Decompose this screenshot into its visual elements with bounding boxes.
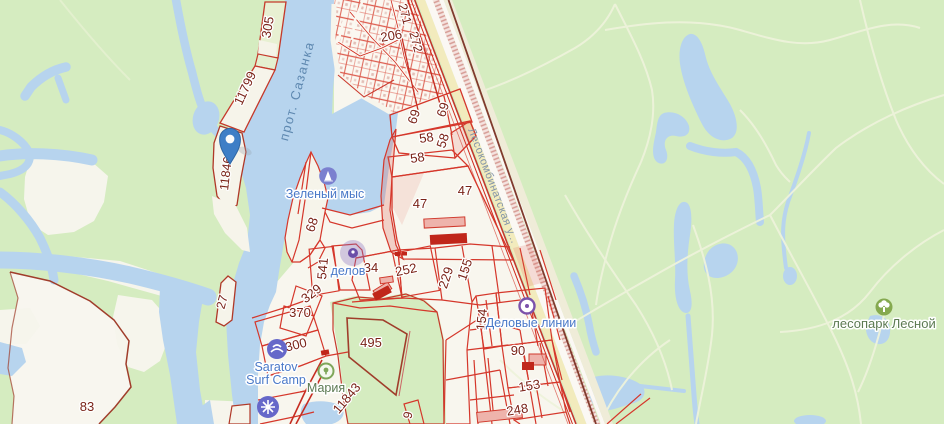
svg-text:90: 90 (511, 343, 525, 358)
svg-text:Saratov: Saratov (254, 360, 298, 374)
svg-text:541: 541 (314, 257, 331, 280)
svg-text:370: 370 (289, 305, 311, 320)
svg-text:Зеленый мыс: Зеленый мыс (286, 187, 365, 201)
svg-text:495: 495 (360, 335, 382, 350)
svg-text:делов: делов (331, 264, 366, 278)
svg-text:47: 47 (413, 196, 427, 211)
svg-text:Мария: Мария (307, 381, 345, 395)
svg-text:Деловые линии: Деловые линии (486, 316, 577, 330)
svg-text:Surf Camp: Surf Camp (246, 373, 306, 387)
svg-text:лесопарк Лесной: лесопарк Лесной (832, 316, 935, 331)
svg-text:83: 83 (80, 399, 94, 414)
svg-text:58: 58 (409, 149, 425, 166)
svg-text:34: 34 (364, 260, 378, 275)
svg-text:47: 47 (458, 183, 472, 198)
svg-text:58: 58 (418, 129, 434, 146)
